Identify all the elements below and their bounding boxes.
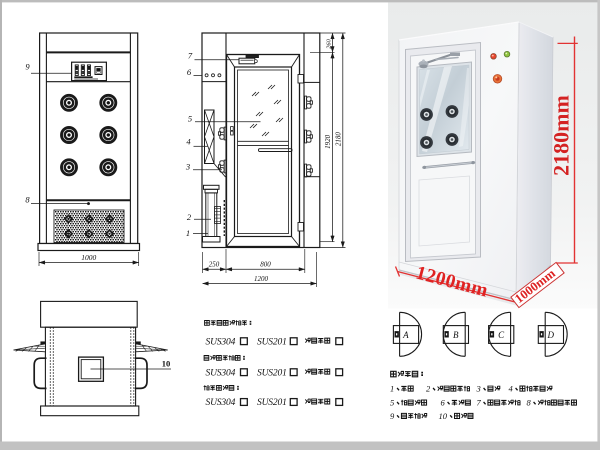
svg-text:SUS304: SUS304 xyxy=(206,337,236,347)
svg-text:SUS201: SUS201 xyxy=(257,337,287,347)
svg-text:5: 5 xyxy=(390,398,394,408)
svg-text:1000: 1000 xyxy=(81,253,96,262)
svg-text:SUS304: SUS304 xyxy=(206,368,236,378)
svg-text:1200: 1200 xyxy=(254,275,269,283)
svg-text:800: 800 xyxy=(260,261,271,269)
svg-text:250: 250 xyxy=(209,261,220,269)
svg-text:B: B xyxy=(453,330,459,340)
svg-text:SUS304: SUS304 xyxy=(206,398,236,408)
svg-text:1: 1 xyxy=(390,384,394,394)
svg-text:A: A xyxy=(402,330,409,340)
svg-text:3: 3 xyxy=(476,384,481,394)
svg-text:SUS201: SUS201 xyxy=(257,368,287,378)
svg-text:D: D xyxy=(547,330,555,340)
svg-text:SUS201: SUS201 xyxy=(257,398,287,408)
svg-text:3: 3 xyxy=(185,162,190,172)
svg-text:2180mm: 2180mm xyxy=(548,95,573,176)
svg-text:10: 10 xyxy=(439,411,448,421)
svg-text:10: 10 xyxy=(162,358,171,368)
svg-text:2180: 2180 xyxy=(335,132,343,147)
svg-text:C: C xyxy=(498,330,505,340)
svg-text:1: 1 xyxy=(186,228,190,238)
svg-text:260: 260 xyxy=(325,38,332,49)
svg-text:5: 5 xyxy=(188,114,192,124)
svg-text:1920: 1920 xyxy=(324,134,332,149)
